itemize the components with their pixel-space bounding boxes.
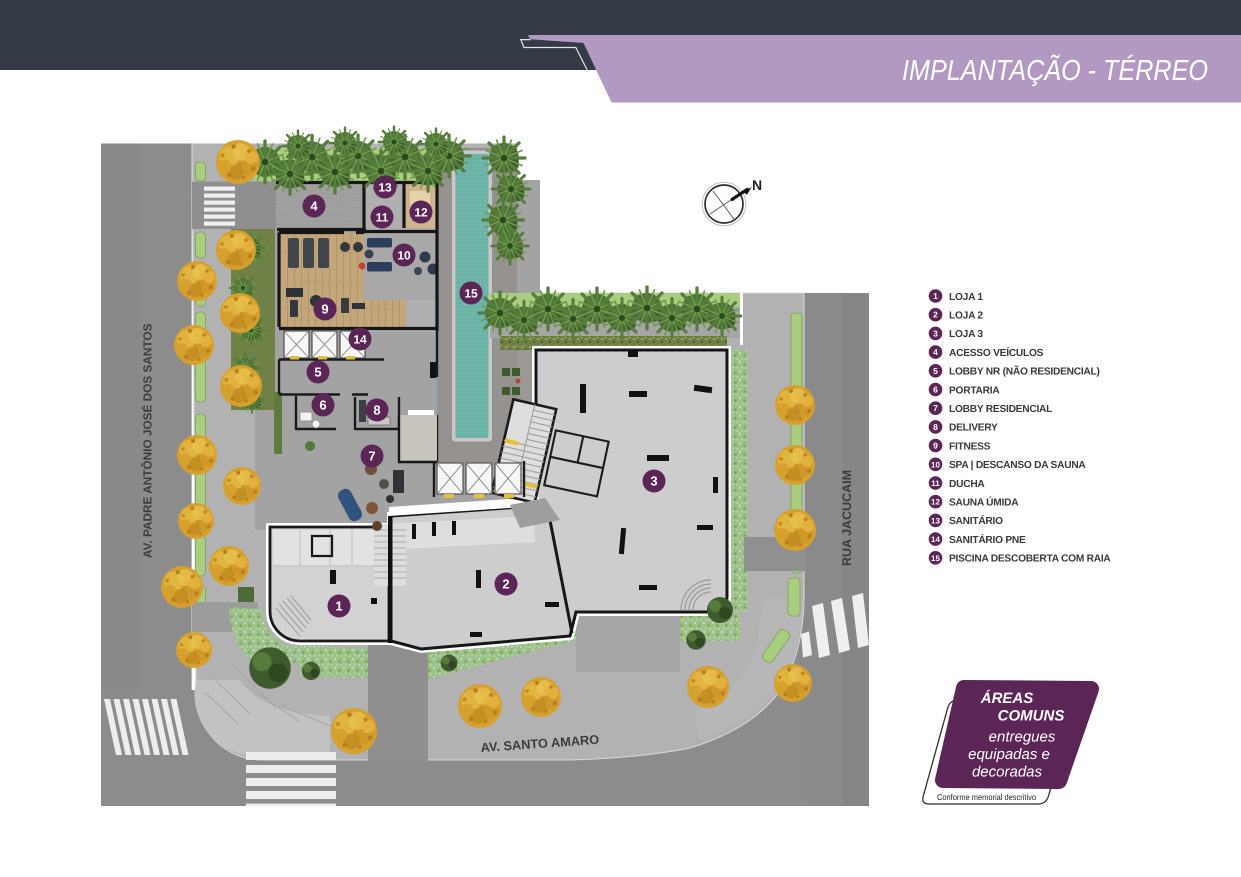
svg-text:9: 9 (321, 302, 328, 317)
svg-text:10: 10 (397, 249, 411, 263)
svg-text:13: 13 (378, 181, 392, 195)
svg-text:PORTARIA: PORTARIA (949, 385, 1000, 396)
svg-text:LOBBY RESIDENCIAL: LOBBY RESIDENCIAL (949, 404, 1052, 415)
svg-text:8: 8 (933, 422, 938, 432)
svg-text:5: 5 (314, 365, 321, 380)
svg-text:IMPLANTAÇÃO - TÉRREO: IMPLANTAÇÃO - TÉRREO (902, 54, 1208, 87)
svg-text:14: 14 (353, 333, 367, 347)
svg-text:15: 15 (464, 287, 478, 301)
svg-text:2: 2 (933, 310, 938, 320)
svg-text:15: 15 (931, 554, 940, 563)
svg-text:N: N (752, 177, 762, 193)
svg-text:SANITÁRIO PNE: SANITÁRIO PNE (949, 533, 1026, 546)
svg-text:ÁREAS: ÁREAS (980, 689, 1034, 707)
svg-text:3: 3 (933, 328, 938, 338)
svg-text:FITNESS: FITNESS (949, 441, 991, 452)
svg-text:LOBBY NR (NÃO RESIDENCIAL): LOBBY NR (NÃO RESIDENCIAL) (949, 365, 1100, 378)
svg-text:equipadas e: equipadas e (968, 746, 1050, 763)
svg-text:4: 4 (310, 199, 318, 214)
svg-text:7: 7 (933, 403, 938, 413)
svg-text:14: 14 (931, 535, 940, 544)
svg-text:1: 1 (933, 291, 938, 301)
svg-text:LOJA 1: LOJA 1 (949, 292, 983, 303)
svg-text:11: 11 (376, 211, 389, 225)
svg-text:8: 8 (373, 403, 380, 418)
svg-text:DUCHA: DUCHA (949, 479, 985, 490)
svg-text:LOJA 3: LOJA 3 (949, 329, 983, 340)
svg-text:3: 3 (650, 474, 657, 489)
svg-text:2: 2 (502, 577, 509, 592)
svg-text:4: 4 (933, 347, 938, 357)
svg-text:11: 11 (931, 479, 940, 488)
svg-text:13: 13 (931, 516, 940, 525)
svg-text:AV. PADRE ANTÔNIO JOSÉ DOS SAN: AV. PADRE ANTÔNIO JOSÉ DOS SANTOS (141, 323, 155, 558)
svg-text:PISCINA DESCOBERTA COM RAIA: PISCINA DESCOBERTA COM RAIA (949, 554, 1111, 565)
svg-text:DELIVERY: DELIVERY (949, 423, 998, 434)
svg-text:decoradas: decoradas (972, 764, 1043, 781)
svg-text:1: 1 (335, 599, 342, 614)
svg-text:12: 12 (931, 498, 940, 507)
svg-text:RUA JACUCAIM: RUA JACUCAIM (840, 470, 854, 566)
svg-text:SANITÁRIO: SANITÁRIO (949, 514, 1003, 527)
svg-text:Conforme memorial descritivo: Conforme memorial descritivo (937, 792, 1036, 802)
svg-text:entregues: entregues (989, 729, 1056, 746)
svg-text:ACESSO VEÍCULOS: ACESSO VEÍCULOS (949, 346, 1044, 359)
svg-text:SAUNA ÚMIDA: SAUNA ÚMIDA (949, 496, 1019, 509)
svg-text:10: 10 (931, 460, 940, 469)
svg-text:5: 5 (933, 366, 938, 376)
svg-text:12: 12 (414, 206, 428, 220)
svg-text:COMUNS: COMUNS (998, 708, 1065, 725)
svg-text:6: 6 (933, 385, 938, 395)
svg-text:SPA | DESCANSO DA SAUNA: SPA | DESCANSO DA SAUNA (949, 460, 1086, 471)
svg-text:6: 6 (319, 398, 326, 413)
svg-text:7: 7 (368, 449, 375, 464)
svg-text:9: 9 (933, 441, 938, 451)
svg-text:LOJA 2: LOJA 2 (949, 311, 983, 322)
